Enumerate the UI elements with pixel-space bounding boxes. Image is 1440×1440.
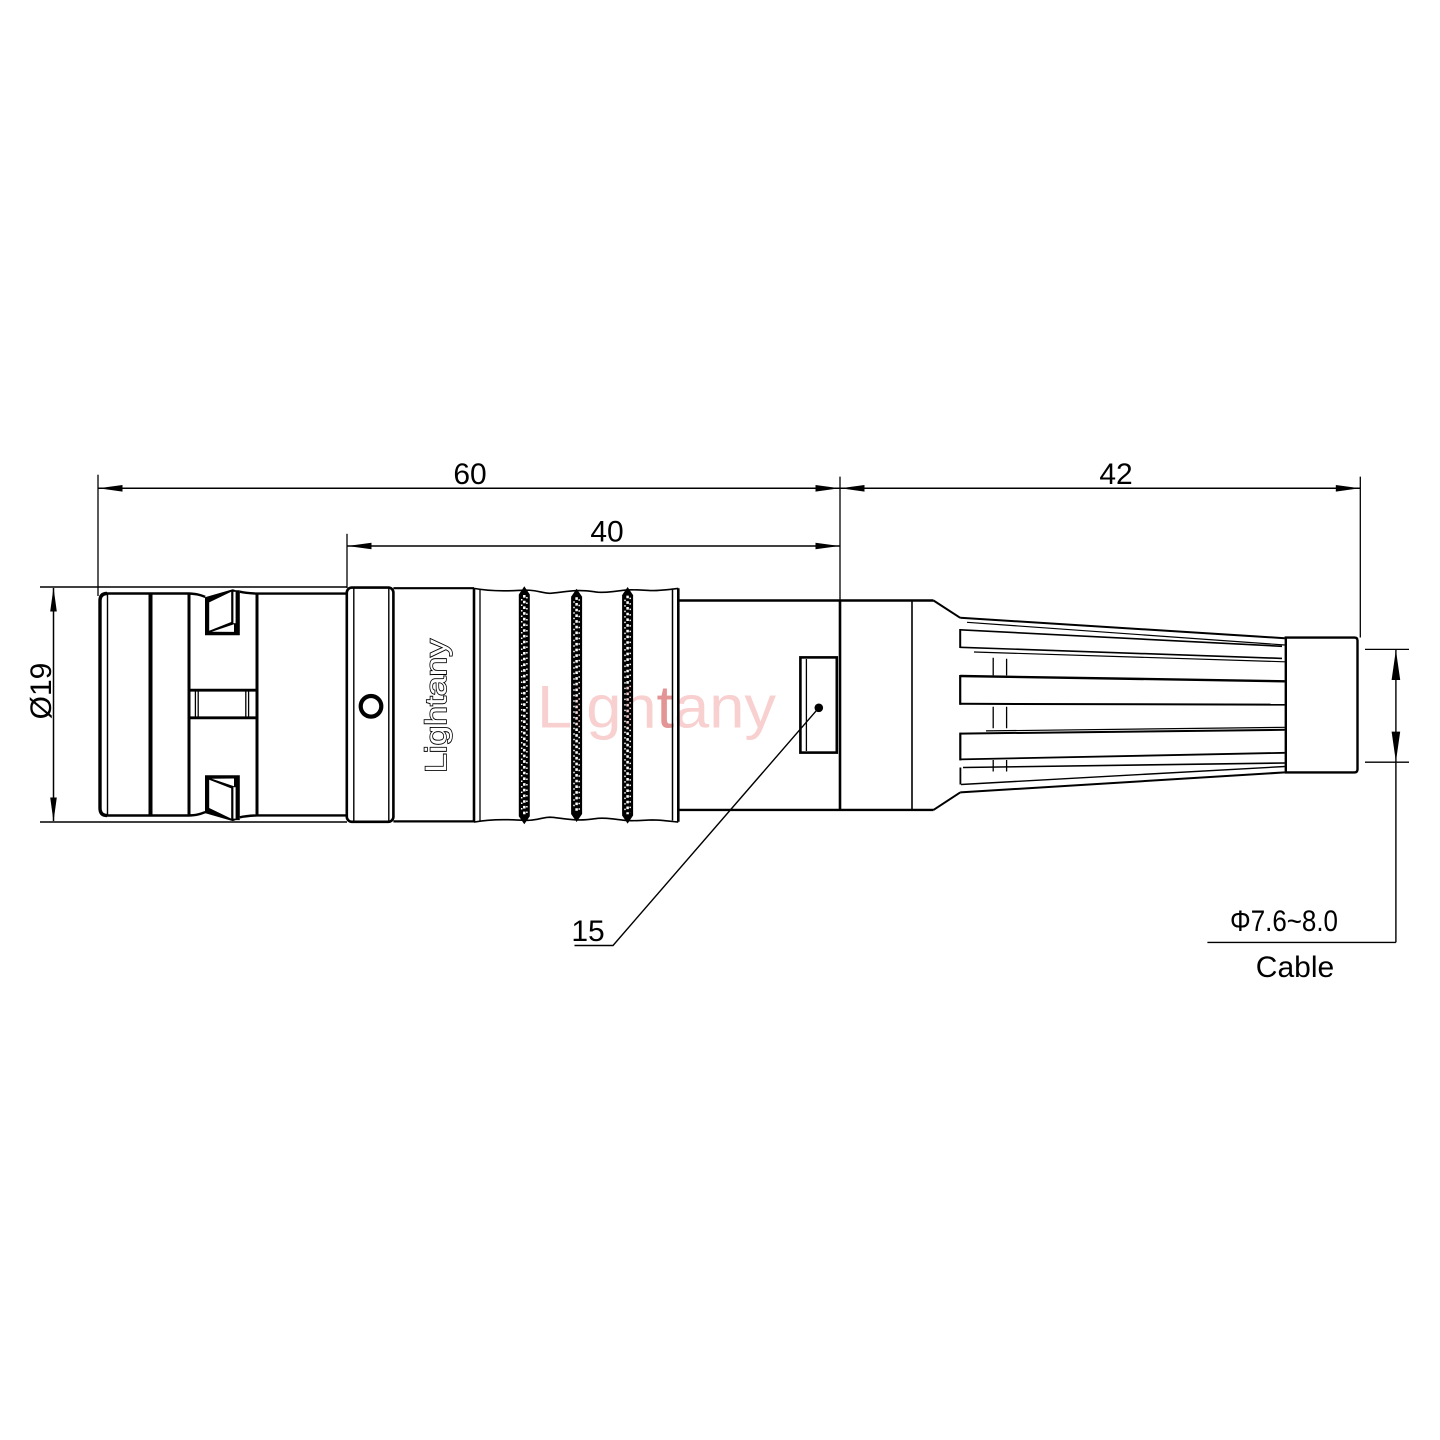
svg-text:Lightany: Lightany [420,639,453,773]
svg-text:15: 15 [571,915,604,948]
svg-text:40: 40 [590,516,623,549]
svg-text:Lightany: Lightany [537,674,776,741]
svg-text:42: 42 [1099,458,1132,491]
svg-text:Cable: Cable [1256,951,1334,984]
svg-text:60: 60 [453,458,486,491]
svg-text:Φ7.6~8.0: Φ7.6~8.0 [1230,905,1338,938]
svg-text:Ø19: Ø19 [25,663,58,720]
